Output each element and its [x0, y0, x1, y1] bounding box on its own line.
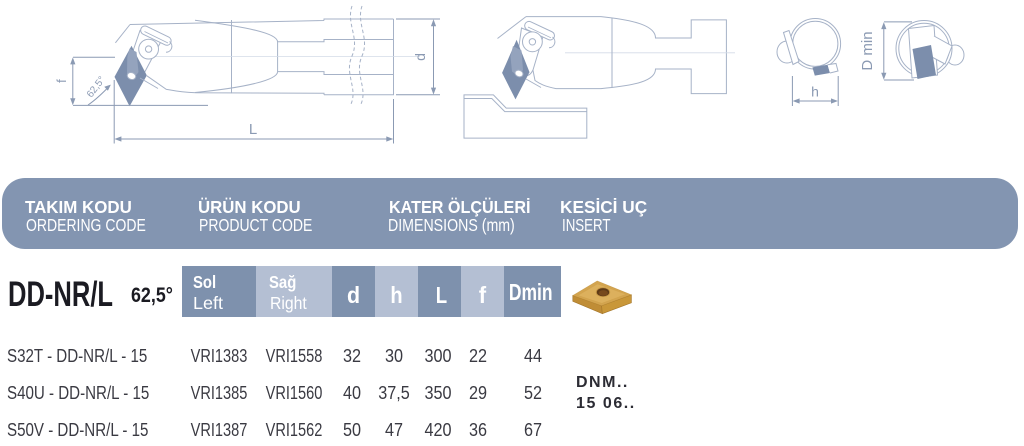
svg-text:L: L	[249, 121, 257, 138]
svg-text:D min: D min	[859, 31, 876, 70]
svg-text:f: f	[54, 79, 69, 83]
svg-text:62,5°: 62,5°	[85, 75, 108, 100]
svg-text:d: d	[412, 53, 428, 61]
svg-text:h: h	[811, 84, 819, 100]
